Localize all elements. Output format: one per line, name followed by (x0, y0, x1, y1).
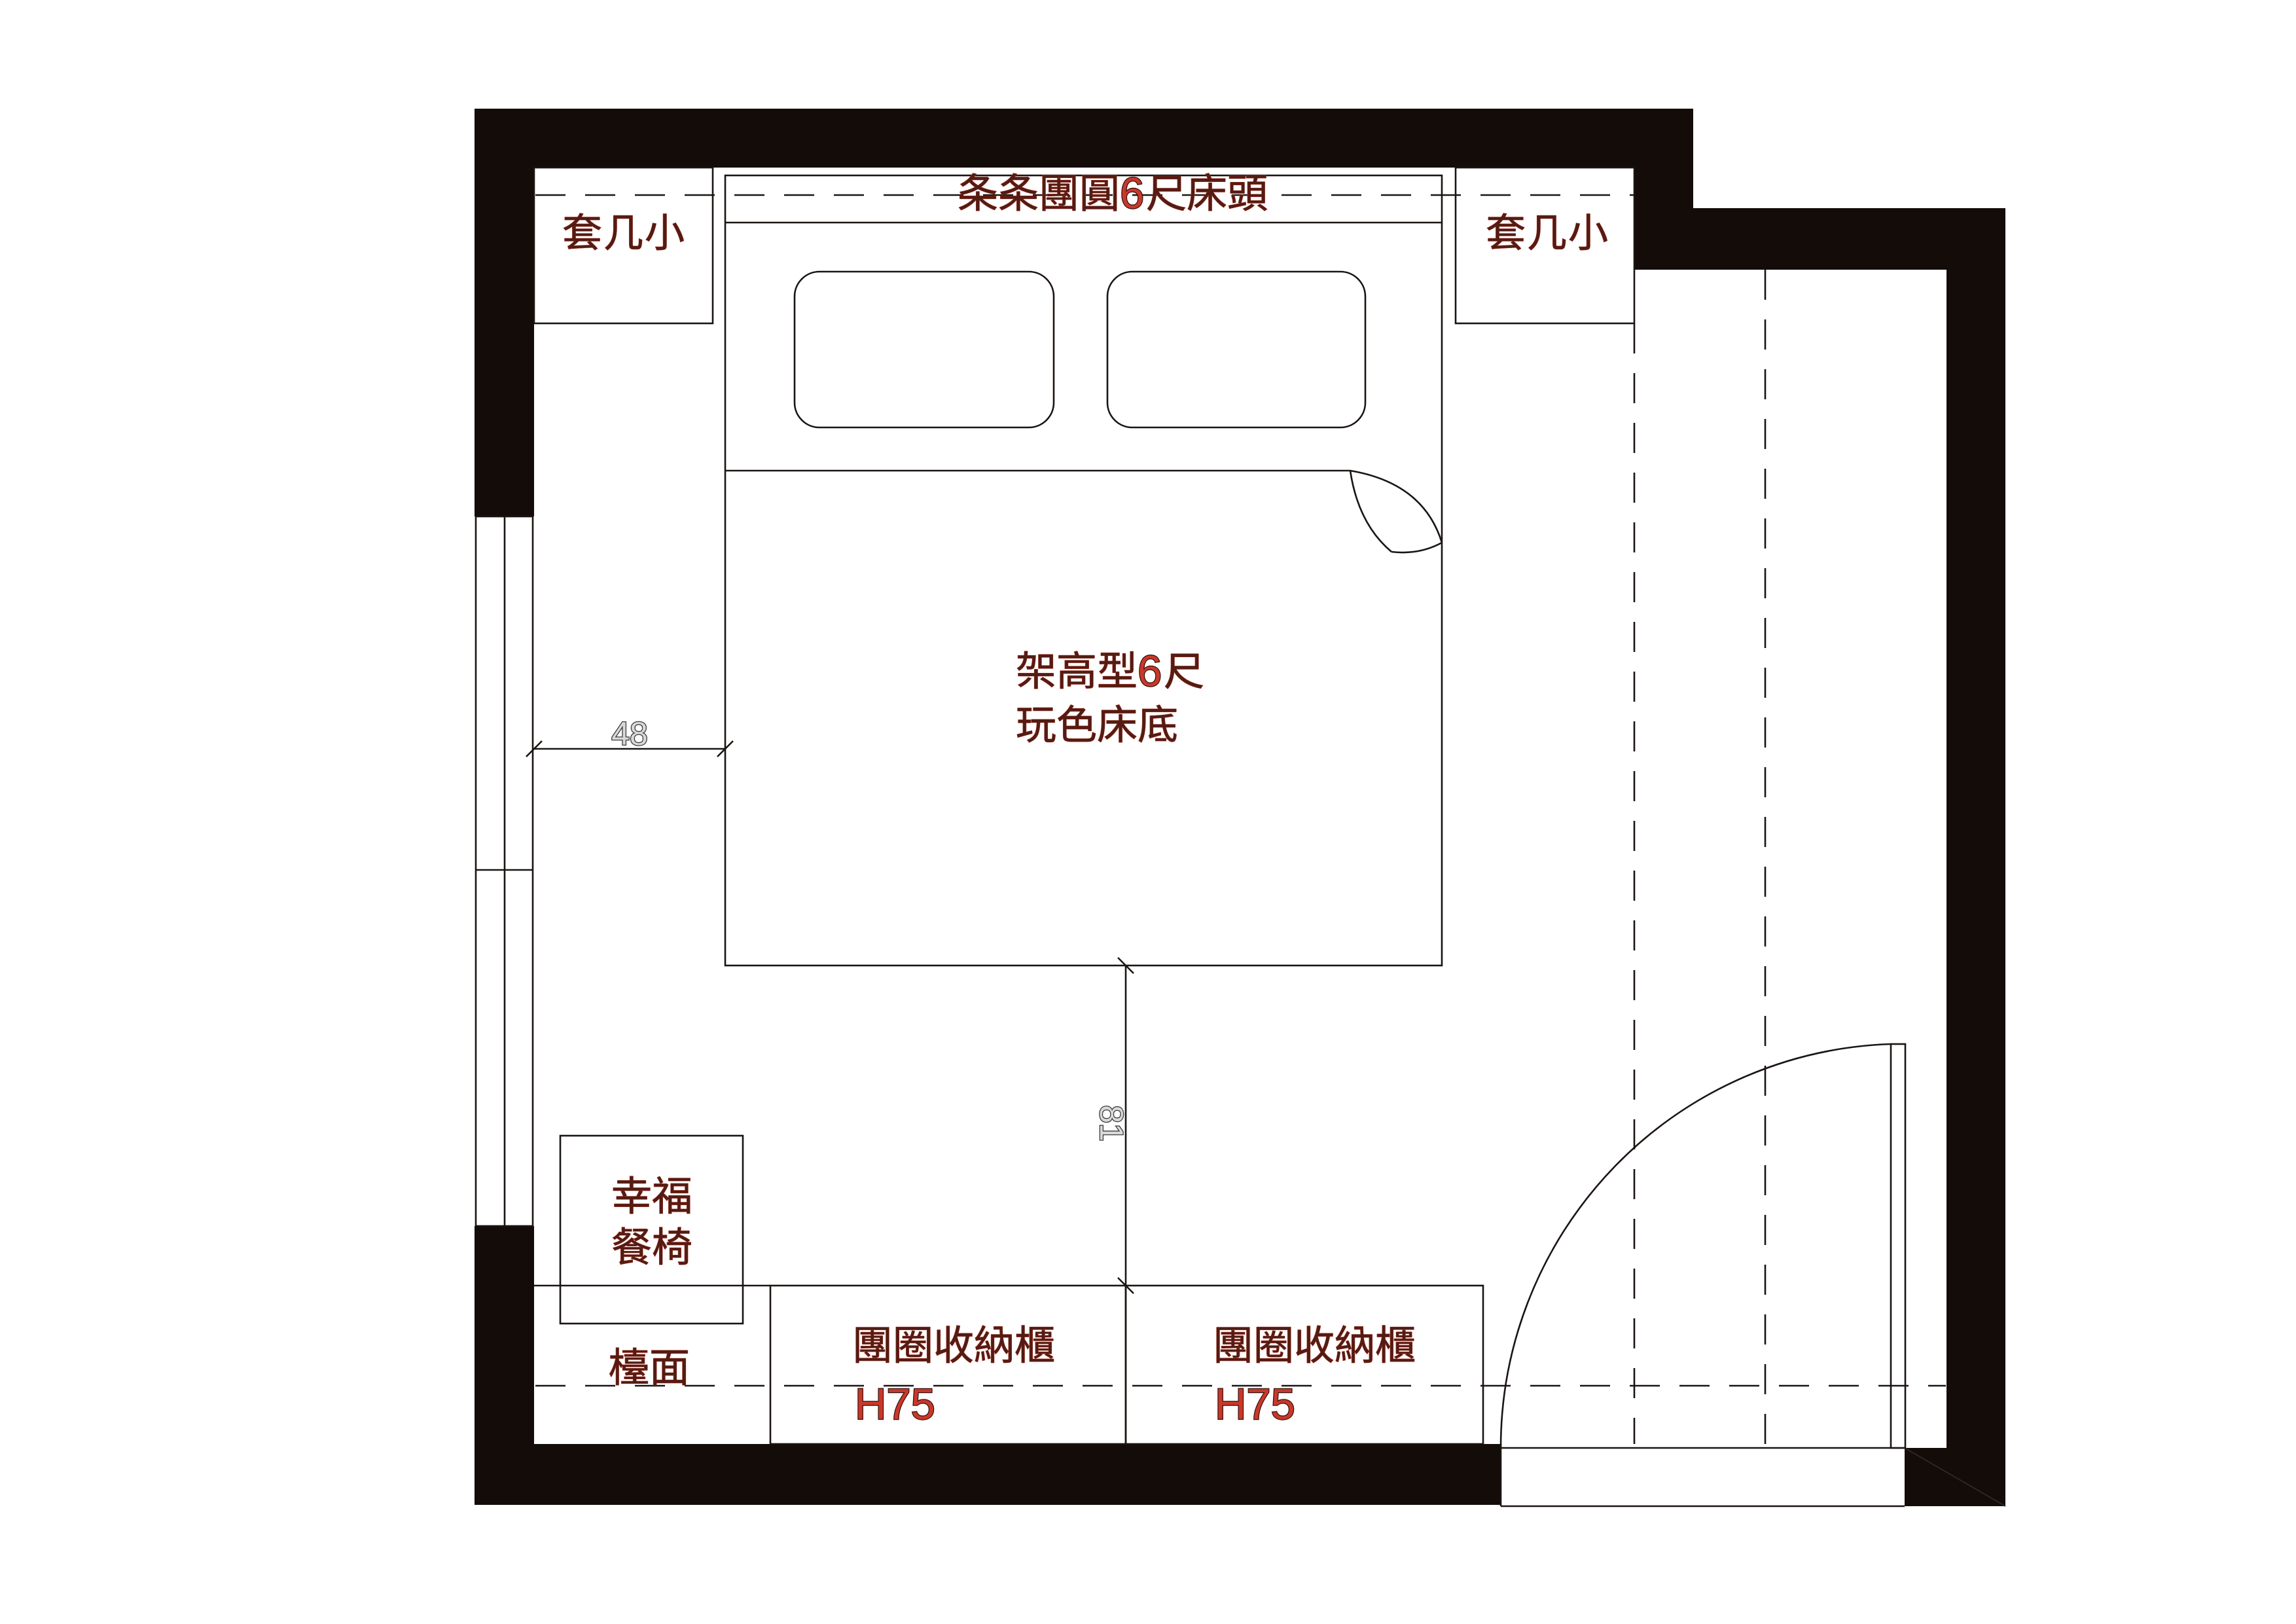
svg-text:48: 48 (611, 715, 648, 752)
svg-text:H75: H75 (855, 1380, 935, 1429)
svg-text:H75: H75 (1215, 1380, 1295, 1429)
svg-text:81: 81 (1093, 1105, 1130, 1142)
svg-text:6: 6 (1120, 169, 1144, 218)
svg-text:6: 6 (1138, 647, 1162, 696)
